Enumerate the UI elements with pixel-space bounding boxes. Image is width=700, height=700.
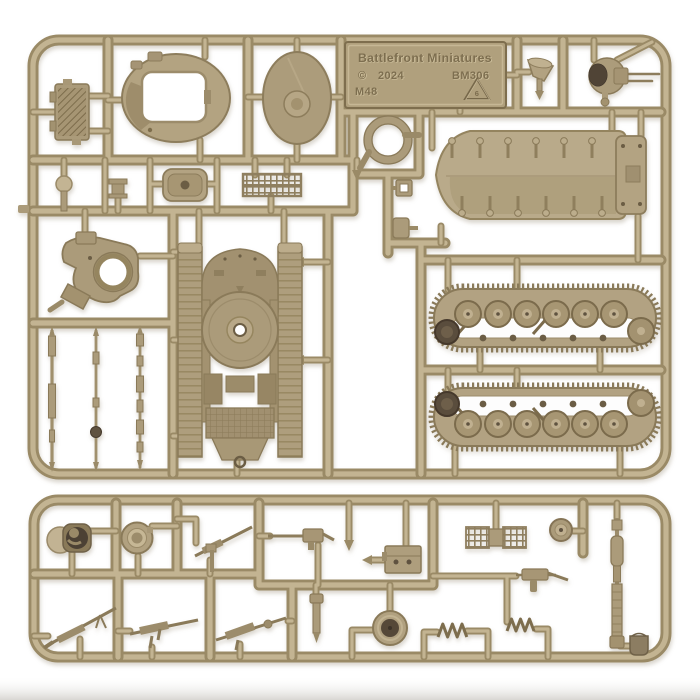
hull-casting-part xyxy=(436,131,646,219)
backdrop-shadow-fade xyxy=(0,676,700,700)
plate-model-text: M48 xyxy=(355,86,378,98)
turret-shell-part xyxy=(122,52,230,142)
plate-brand-text: Battlefront Miniatures xyxy=(358,51,492,65)
recycling-number-text: 6 xyxy=(475,89,480,98)
sprue-photo: Battlefront Miniatures Battlefront Minia… xyxy=(0,0,700,700)
cut-gate-stub xyxy=(18,205,29,213)
crew-figure-hatch-part xyxy=(47,524,91,553)
track-run-lower-part xyxy=(431,385,659,449)
stowage-mesh-rack-part xyxy=(243,174,301,196)
open-hatch-ring-part xyxy=(122,523,154,554)
plate-copyright-symbol: © xyxy=(358,70,367,82)
hatch-wheel-part xyxy=(373,611,407,645)
plate-code-text: BM306 xyxy=(452,70,489,82)
track-run-upper-part xyxy=(431,286,659,350)
turret-base-disc-part xyxy=(263,52,331,144)
hull-bottom-part xyxy=(178,243,302,467)
bucket-part xyxy=(630,634,648,656)
hatch-cover-part xyxy=(163,169,207,201)
road-wheel-part xyxy=(550,519,572,541)
sprue-photo-canvas: Battlefront Miniatures Battlefront Minia… xyxy=(0,0,700,700)
brand-plate: Battlefront Miniatures Battlefront Minia… xyxy=(345,42,506,108)
bracket-part xyxy=(109,179,127,198)
plate-year-text: 2024 xyxy=(378,70,405,82)
engine-grille-part xyxy=(50,79,89,145)
ammo-box-part xyxy=(382,546,421,573)
stowage-basket-part xyxy=(466,527,526,548)
